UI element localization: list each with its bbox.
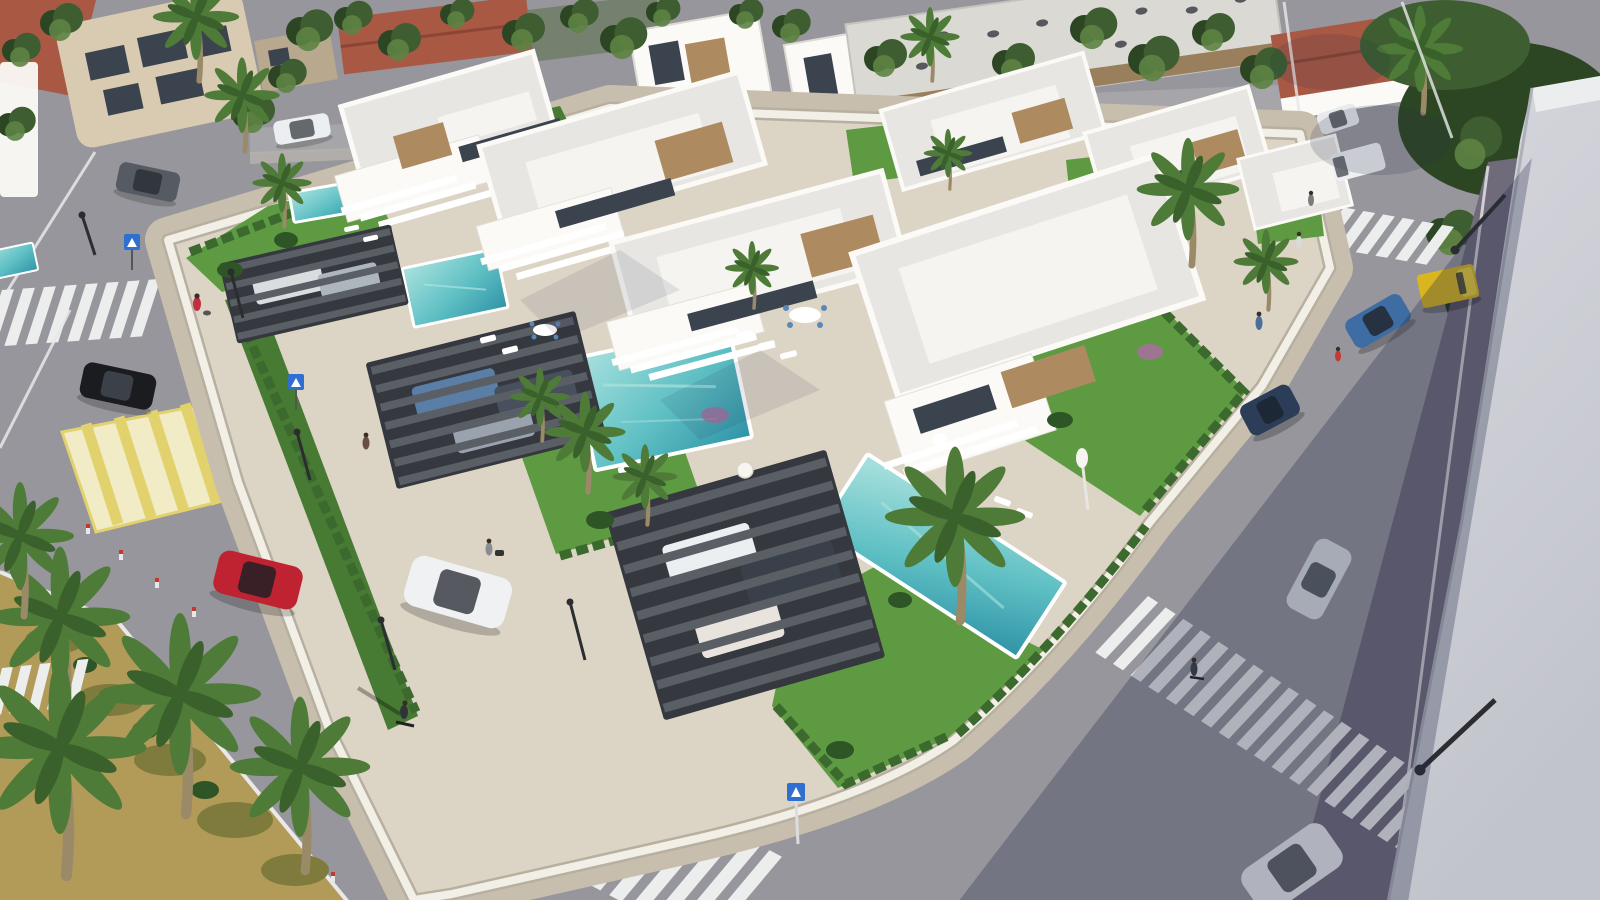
- child-red-east: [1335, 347, 1341, 362]
- render-canvas: [0, 0, 1600, 900]
- aerial-villa-render: [0, 0, 1600, 900]
- pedestrian-white-east: [1296, 232, 1302, 248]
- flower-bush: [1137, 344, 1163, 360]
- pedestrian-top-east: [1308, 191, 1314, 206]
